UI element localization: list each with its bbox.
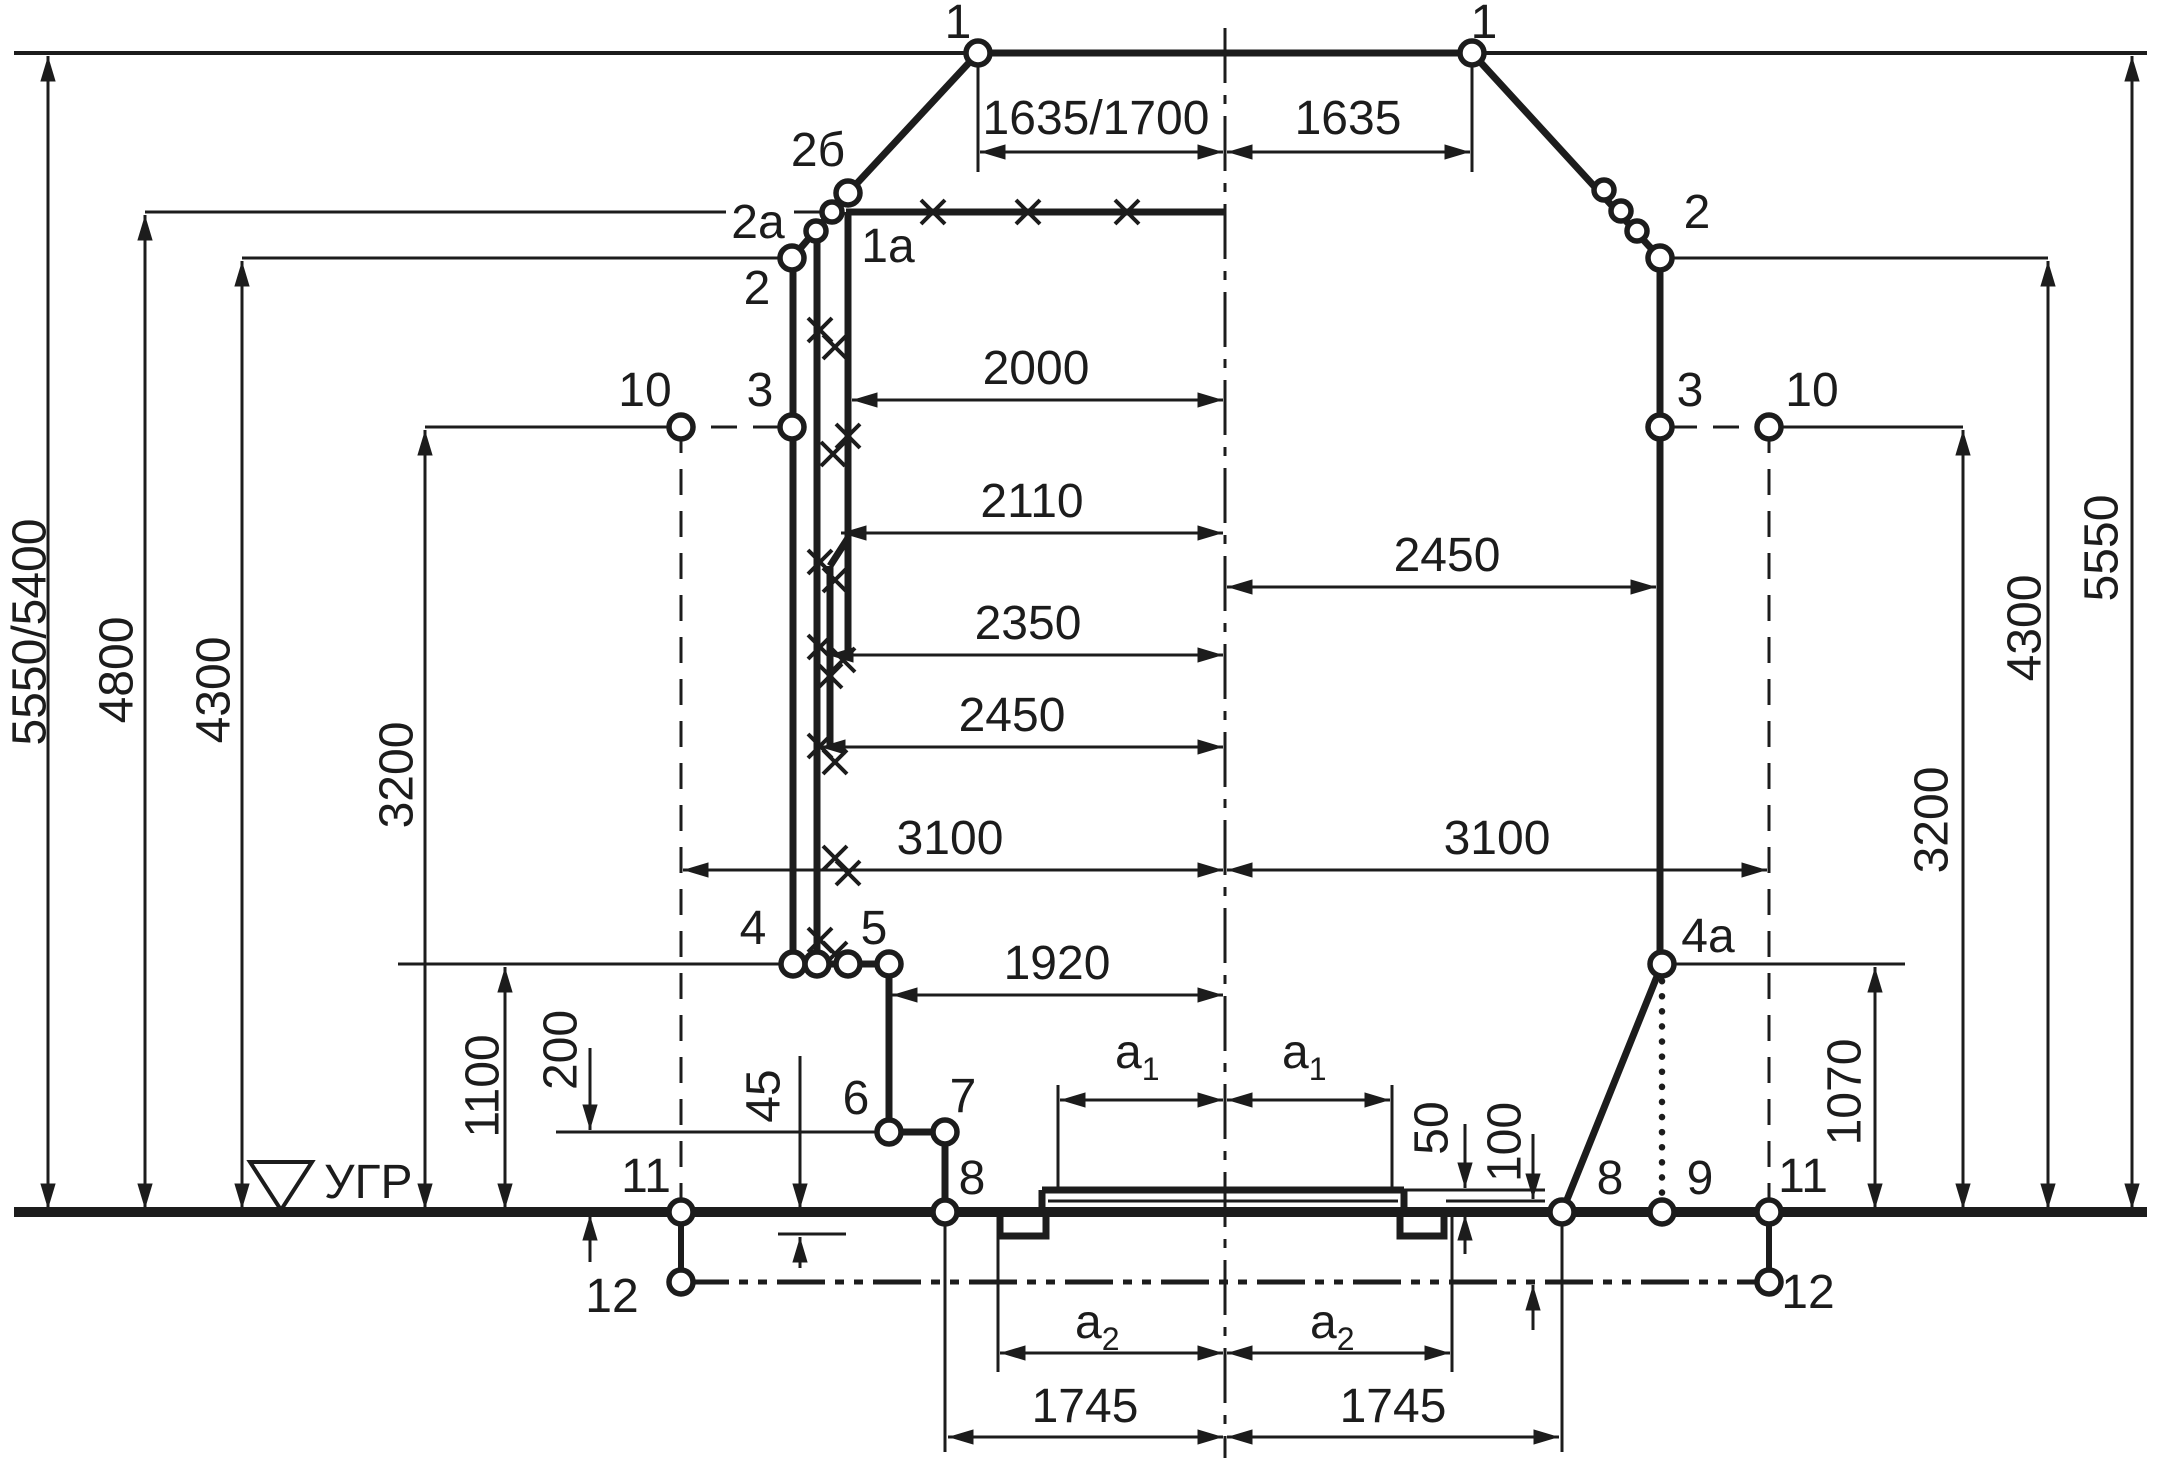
dim-3100-left-label: 3100 — [897, 812, 1004, 865]
point-2-label-right: 2 — [1684, 186, 1711, 239]
dim-2110-label: 2110 — [980, 475, 1083, 528]
clearance-gauge-diagram: УГР 1 1 2б 2a 1a 2 2 3 10 3 10 4 5 4a 6 … — [0, 0, 2161, 1463]
dim-a1-right-label: a1 — [1282, 1026, 1327, 1087]
point-11-label-right: 11 — [1778, 1150, 1828, 1203]
point-9-label: 9 — [1687, 1152, 1714, 1205]
dim-1100-label: 1100 — [457, 1034, 510, 1137]
point-11-label-left: 11 — [621, 1150, 671, 1203]
point-1a-label: 1a — [861, 220, 915, 273]
chain-marker-right-3 — [1627, 221, 1647, 241]
dim-1070-label: 1070 — [1819, 1039, 1872, 1146]
point-10-label-right: 10 — [1785, 364, 1838, 417]
dimension-lines — [48, 56, 2132, 1452]
point-3-marker-left — [780, 415, 804, 439]
point-2a-marker — [822, 202, 842, 222]
row-marker-3 — [836, 952, 860, 976]
dim-2450-left-label: 2450 — [959, 689, 1066, 742]
point-7-marker — [933, 1120, 957, 1144]
point-2b-label: 2б — [791, 124, 845, 177]
dim-a2-right-label: a2 — [1310, 1296, 1355, 1357]
chain-marker-right-2 — [1611, 201, 1631, 221]
dim-1745-left-label: 1745 — [1032, 1380, 1139, 1433]
point-3-label-left: 3 — [747, 364, 774, 417]
diagram-canvas: УГР 1 1 2б 2a 1a 2 2 3 10 3 10 4 5 4a 6 … — [0, 0, 2161, 1463]
dim-1745-right-label: 1745 — [1340, 1380, 1447, 1433]
dim-1920-label: 1920 — [1004, 937, 1111, 990]
dim-a2-left-label: a2 — [1075, 1296, 1120, 1357]
dim-50-label: 50 — [1406, 1101, 1459, 1154]
point-11-marker-right — [1757, 1200, 1781, 1224]
dim-1635-1700-label: 1635/1700 — [983, 92, 1210, 145]
dim-200-label: 200 — [535, 1010, 588, 1090]
chain-marker-right-1 — [1594, 180, 1614, 200]
dim-5550-5400-label: 5550/5400 — [4, 519, 57, 746]
dim-5550-right-label: 5550 — [2076, 495, 2129, 602]
point-9-marker — [1650, 1200, 1674, 1224]
point-2-label-left: 2 — [744, 262, 771, 315]
point-8-label-left: 8 — [959, 1152, 986, 1205]
point-10-label-left: 10 — [618, 364, 671, 417]
level-triangle-icon — [250, 1162, 312, 1210]
point-3-label-right: 3 — [1677, 364, 1704, 417]
point-5-label: 5 — [861, 902, 888, 955]
point-11-marker-left — [669, 1200, 693, 1224]
point-8-marker-right — [1550, 1200, 1574, 1224]
point-2b-marker — [836, 181, 860, 205]
point-4a-label: 4a — [1681, 910, 1735, 963]
point-12-label-right: 12 — [1781, 1266, 1834, 1319]
point-10-marker-right — [1757, 415, 1781, 439]
point-1-label-left: 1 — [945, 0, 972, 49]
point-2-marker-left — [780, 246, 804, 270]
chain-marker-left — [806, 221, 826, 241]
point-6-label: 6 — [843, 1072, 870, 1125]
point-12-marker-left — [669, 1270, 693, 1294]
dim-3200-right-label: 3200 — [1906, 767, 1959, 874]
point-4a-marker — [1650, 952, 1674, 976]
rail-level-label: УГР — [324, 1156, 413, 1209]
dim-4800-label: 4800 — [91, 617, 144, 724]
dim-2450-right-label: 2450 — [1394, 529, 1501, 582]
dim-4300-right-label: 4300 — [1999, 575, 2052, 682]
rail-level-symbol: УГР — [250, 1156, 413, 1210]
point-10-marker-left — [669, 415, 693, 439]
row-marker-2 — [805, 952, 829, 976]
dim-1635-label: 1635 — [1295, 92, 1402, 145]
point-12-label-left: 12 — [585, 1270, 638, 1323]
point-1-label-right: 1 — [1471, 0, 1498, 49]
dim-3100-right-label: 3100 — [1444, 812, 1551, 865]
dim-2000-label: 2000 — [983, 342, 1090, 395]
dim-100-label: 100 — [1479, 1102, 1532, 1182]
point-6-marker — [877, 1120, 901, 1144]
dimension-labels: 1635/1700 1635 2000 2110 2350 2450 2450 … — [4, 92, 2129, 1433]
point-4-marker — [781, 952, 805, 976]
point-2a-label: 2a — [731, 196, 785, 249]
point-3-marker-right — [1648, 415, 1672, 439]
point-5-marker — [877, 952, 901, 976]
point-12-marker-right — [1757, 1270, 1781, 1294]
point-2-marker-right — [1648, 246, 1672, 270]
point-labels: 1 1 2б 2a 1a 2 2 3 10 3 10 4 5 4a 6 7 8 … — [585, 0, 1838, 1323]
dim-45-label: 45 — [738, 1069, 791, 1122]
dim-4300-left-label: 4300 — [188, 637, 241, 744]
point-7-label: 7 — [950, 1070, 977, 1123]
point-8-marker-left — [933, 1200, 957, 1224]
dim-a1-left-label: a1 — [1115, 1026, 1160, 1087]
upper-left-diagonal — [848, 53, 978, 193]
dim-2350-label: 2350 — [975, 597, 1082, 650]
point-4-label: 4 — [740, 902, 767, 955]
point-8-label-right: 8 — [1597, 1152, 1624, 1205]
boundary-lines — [14, 28, 2147, 1458]
dim-3200-left-label: 3200 — [371, 722, 424, 829]
